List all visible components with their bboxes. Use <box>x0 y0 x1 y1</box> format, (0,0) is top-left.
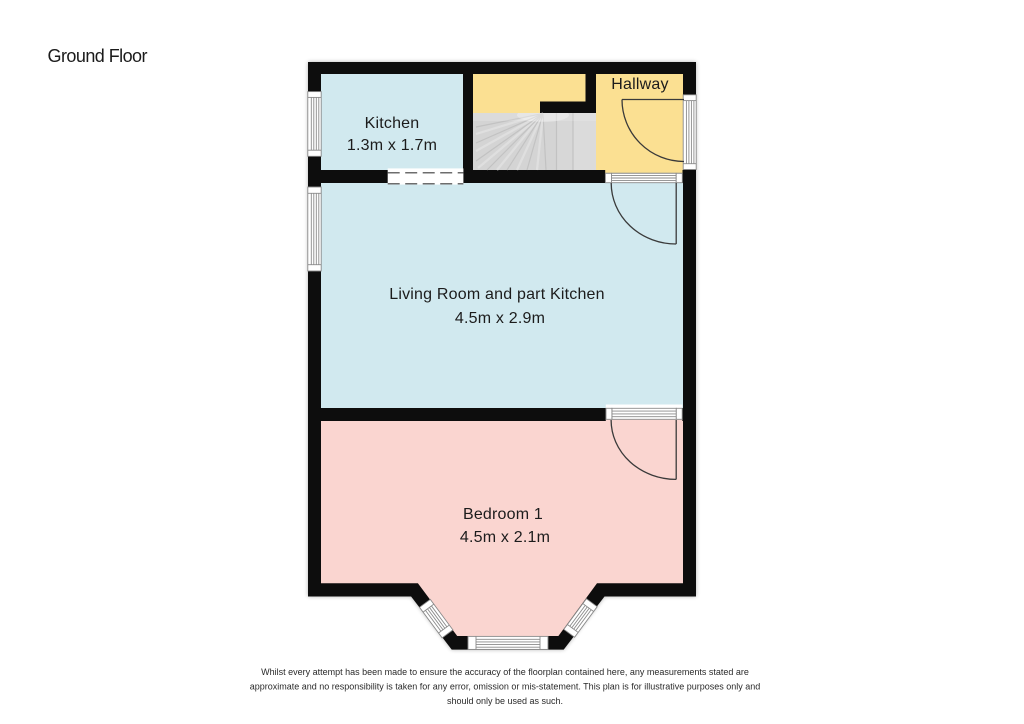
svg-text:Whilst every attempt has been: Whilst every attempt has been made to en… <box>261 667 749 677</box>
svg-text:Living Room and part Kitchen: Living Room and part Kitchen <box>389 286 605 303</box>
svg-text:approximate and no responsibil: approximate and no responsibility is tak… <box>250 682 761 692</box>
svg-text:1.3m x 1.7m: 1.3m x 1.7m <box>347 137 437 154</box>
svg-text:Ground Floor: Ground Floor <box>48 46 148 66</box>
svg-text:should only be used as such.: should only be used as such. <box>447 696 563 706</box>
svg-text:Hallway: Hallway <box>611 76 668 93</box>
svg-text:4.5m x 2.1m: 4.5m x 2.1m <box>460 529 550 546</box>
svg-text:4.5m x 2.9m: 4.5m x 2.9m <box>455 310 545 327</box>
svg-text:Kitchen: Kitchen <box>365 115 420 132</box>
svg-text:Bedroom 1: Bedroom 1 <box>463 506 543 523</box>
